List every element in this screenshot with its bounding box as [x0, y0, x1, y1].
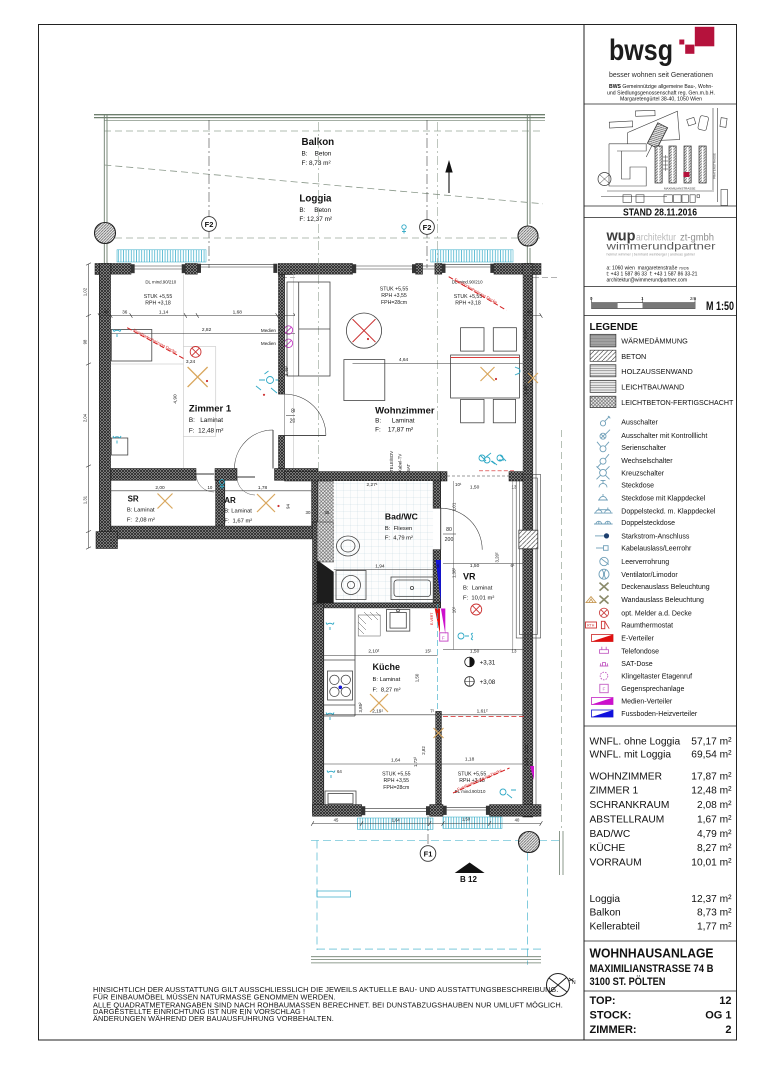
svg-text:10¹: 10¹	[455, 482, 462, 487]
svg-text:2,10²: 2,10²	[368, 649, 379, 655]
svg-text:1,77 m²: 1,77 m²	[697, 921, 732, 932]
svg-text:B: Laminat: B: Laminat	[463, 586, 493, 592]
svg-text:RPH +3,55: RPH +3,55	[381, 293, 407, 299]
svg-text:B 12: B 12	[460, 875, 477, 884]
svg-text:BETON: BETON	[621, 352, 646, 361]
svg-text:ÄNDERUNGEN WÄHREND DER BAUAUSF: ÄNDERUNGEN WÄHREND DER BAUAUSFÜHRUNG VOR…	[93, 1014, 334, 1023]
svg-text:7¹: 7¹	[430, 709, 434, 714]
svg-text:B: Laminat: B: Laminat	[224, 509, 252, 515]
svg-text:F: 2,08 m²: F: 2,08 m²	[127, 517, 155, 523]
svg-text:Bad/WC: Bad/WC	[385, 511, 418, 521]
svg-text:1,68: 1,68	[233, 309, 243, 315]
svg-text:2,27¹: 2,27¹	[367, 482, 378, 488]
svg-text:1,94: 1,94	[375, 563, 385, 569]
svg-text:Klingeltaster Etagenruf: Klingeltaster Etagenruf	[621, 674, 692, 681]
svg-text:besser wohnen seit Generatione: besser wohnen seit Generationen	[609, 70, 713, 79]
svg-text:17,87 m²: 17,87 m²	[691, 772, 732, 783]
svg-text:3,85²: 3,85²	[358, 702, 363, 713]
svg-text:40: 40	[526, 309, 532, 314]
svg-text:TELE/EDV: TELE/EDV	[389, 451, 394, 472]
svg-text:helmut wimmer | bernhard weinb: helmut wimmer | bernhard weinberger | an…	[607, 252, 695, 256]
svg-text:WOHNHAUSANLAGE: WOHNHAUSANLAGE	[590, 946, 714, 961]
svg-text:64: 64	[337, 769, 342, 774]
svg-text:STOCK:: STOCK:	[590, 1009, 632, 1021]
svg-text:B: Beton: B: Beton	[302, 151, 332, 158]
svg-text:M 1:50: M 1:50	[706, 301, 734, 313]
svg-text:F: 4,79 m²: F: 4,79 m²	[385, 536, 413, 542]
svg-text:2,82: 2,82	[202, 327, 212, 333]
svg-text:F2: F2	[205, 220, 214, 229]
svg-text:1,61²: 1,61²	[477, 709, 488, 715]
svg-text:Zimmer 1: Zimmer 1	[189, 404, 232, 415]
svg-text:Telefondose: Telefondose	[621, 649, 659, 656]
svg-text:F: 8,27 m²: F: 8,27 m²	[373, 687, 401, 693]
svg-text:wimmerundpartner: wimmerundpartner	[605, 242, 716, 253]
svg-text:VR: VR	[463, 572, 476, 582]
svg-text:MAXIMILIANSTRASSE 74 B: MAXIMILIANSTRASSE 74 B	[590, 963, 714, 975]
svg-text:+3,31: +3,31	[480, 660, 496, 667]
svg-text:12,37 m²: 12,37 m²	[691, 894, 732, 905]
svg-text:3,46²: 3,46²	[523, 328, 528, 339]
svg-text:1,50: 1,50	[470, 485, 480, 491]
svg-text:1,67 m²: 1,67 m²	[697, 814, 732, 825]
svg-text:Wechselschalter: Wechselschalter	[621, 458, 673, 465]
svg-text:STUK +5,55: STUK +5,55	[382, 771, 411, 777]
svg-text:Medien: Medien	[261, 328, 277, 333]
svg-text:35: 35	[324, 510, 329, 515]
svg-text:Ventilator/Limodor: Ventilator/Limodor	[621, 572, 678, 579]
svg-text:2,08 m²: 2,08 m²	[697, 800, 732, 811]
svg-text:1,78: 1,78	[258, 485, 268, 491]
svg-text:B: Laminat: B: Laminat	[373, 677, 401, 683]
svg-text:F: 17,87 m²: F: 17,87 m²	[375, 427, 413, 434]
svg-text:1,32: 1,32	[524, 744, 529, 753]
svg-text:Kreuzschalter: Kreuzschalter	[621, 470, 664, 477]
svg-text:1,50: 1,50	[462, 817, 471, 822]
svg-text:F: 12,37 m²: F: 12,37 m²	[299, 216, 332, 223]
svg-text:1,14: 1,14	[159, 309, 169, 315]
svg-text:Kabelauslass/Leerrohr: Kabelauslass/Leerrohr	[621, 546, 692, 553]
svg-text:Küche: Küche	[373, 662, 401, 672]
svg-text:69,54 m²: 69,54 m²	[691, 749, 732, 760]
svg-text:F: 12,48 m²: F: 12,48 m²	[189, 427, 223, 434]
svg-text:SR: SR	[128, 495, 139, 504]
svg-text:FPH=28cm: FPH=28cm	[381, 300, 407, 306]
svg-text:Doppelsteckd. m. Klappdeckel: Doppelsteckd. m. Klappdeckel	[621, 509, 716, 516]
svg-text:Leerverrohrung: Leerverrohrung	[621, 559, 669, 566]
svg-text:Medien-Verteiler: Medien-Verteiler	[621, 699, 673, 706]
svg-text:Gegensprechanlage: Gegensprechanlage	[621, 686, 684, 693]
svg-text:40: 40	[515, 818, 520, 823]
svg-text:bwsg: bwsg	[609, 34, 673, 67]
svg-text:1,50: 1,50	[414, 673, 419, 682]
svg-text:3,20²: 3,20²	[495, 552, 500, 563]
svg-text:SCHRANKRAUM: SCHRANKRAUM	[590, 800, 670, 811]
svg-text:STAND 28.11.2016: STAND 28.11.2016	[623, 207, 697, 218]
svg-text:architektur@wimmerundpartner.c: architektur@wimmerundpartner.com	[607, 278, 688, 284]
svg-text:10: 10	[434, 563, 439, 568]
svg-text:1,64: 1,64	[391, 758, 401, 764]
svg-text:Serienschalter: Serienschalter	[621, 445, 666, 452]
svg-text:E-VERT: E-VERT	[430, 613, 434, 625]
svg-text:LEICHTBAUWAND: LEICHTBAUWAND	[621, 382, 684, 391]
svg-text:10,01 m²: 10,01 m²	[691, 857, 732, 868]
svg-text:2,04: 2,04	[83, 413, 88, 422]
svg-text:F1: F1	[424, 849, 433, 858]
svg-text:10¹: 10¹	[452, 606, 457, 613]
svg-text:3,46²: 3,46²	[523, 384, 528, 395]
svg-text:N: N	[572, 980, 576, 986]
svg-text:10: 10	[207, 485, 212, 490]
svg-text:45: 45	[334, 818, 339, 823]
svg-text:DL mind.90/210: DL mind.90/210	[145, 279, 176, 284]
svg-text:2,82: 2,82	[421, 746, 426, 755]
svg-text:1,18: 1,18	[465, 757, 475, 763]
svg-text:LEGENDE: LEGENDE	[590, 322, 639, 333]
svg-text:PRATERSTRASSE: PRATERSTRASSE	[713, 153, 717, 179]
svg-text:BWS Gemeinnützige allgemeine B: BWS Gemeinnützige allgemeine Bau-, Wohn-	[609, 84, 713, 90]
svg-text:200: 200	[445, 537, 454, 543]
svg-text:TOP:: TOP:	[590, 995, 616, 1007]
svg-text:LEICHTBETON-FERTIGSCHACHT: LEICHTBETON-FERTIGSCHACHT	[621, 398, 734, 407]
svg-text:E-Verteiler: E-Verteiler	[621, 636, 654, 643]
svg-text:80: 80	[446, 527, 452, 533]
svg-text:Balkon: Balkon	[590, 907, 621, 918]
svg-text:Steckdose: Steckdose	[621, 483, 654, 490]
svg-text:ZIMMER:: ZIMMER:	[590, 1024, 637, 1036]
svg-text:1,01: 1,01	[452, 502, 457, 511]
svg-text:30: 30	[306, 510, 311, 515]
svg-text:57,17 m²: 57,17 m²	[691, 736, 732, 747]
svg-text:WNFL. mit Loggia: WNFL. mit Loggia	[590, 749, 672, 760]
svg-text:1,02: 1,02	[83, 287, 88, 296]
svg-text:13: 13	[512, 485, 517, 490]
svg-text:Doppelsteckdose: Doppelsteckdose	[621, 520, 675, 527]
svg-text:4,64: 4,64	[399, 357, 409, 363]
svg-text:15¹: 15¹	[425, 649, 432, 654]
svg-text:98: 98	[83, 339, 88, 344]
svg-text:B: Beton: B: Beton	[299, 207, 331, 214]
svg-text:KÜCHE: KÜCHE	[590, 842, 626, 854]
svg-text:F: 8,73 m²: F: 8,73 m²	[302, 160, 331, 167]
svg-text:Deckenauslass Beleuchtung: Deckenauslass Beleuchtung	[621, 584, 709, 591]
svg-text:4,79 m²: 4,79 m²	[697, 829, 732, 840]
svg-text:8,73 m²: 8,73 m²	[697, 907, 732, 918]
svg-text:Raumthermostat: Raumthermostat	[621, 623, 673, 630]
svg-text:2m: 2m	[690, 296, 696, 301]
svg-text:Balkon: Balkon	[302, 137, 335, 148]
svg-text:4,90: 4,90	[173, 394, 179, 404]
svg-text:STUK +5,55: STUK +5,55	[144, 294, 173, 300]
svg-text:B: Laminat: B: Laminat	[189, 417, 223, 424]
svg-text:OG 1: OG 1	[705, 1009, 731, 1021]
svg-text:1,43: 1,43	[524, 757, 529, 766]
svg-text:ZIMMER 1: ZIMMER 1	[590, 785, 639, 796]
svg-text:RPH +3,55: RPH +3,55	[384, 778, 410, 784]
svg-text:Wandauslass Beleuchtung: Wandauslass Beleuchtung	[621, 597, 704, 604]
svg-text:8,27 m²: 8,27 m²	[697, 843, 732, 854]
svg-text:STUK +5,55: STUK +5,55	[380, 286, 409, 292]
svg-text:Loggia: Loggia	[299, 194, 332, 205]
svg-text:SAT-Dose: SAT-Dose	[621, 661, 652, 668]
svg-text:Kabel-TV: Kabel-TV	[398, 454, 403, 472]
svg-text:HOLZAUSSENWAND: HOLZAUSSENWAND	[621, 367, 693, 376]
svg-text:F: F	[442, 635, 445, 640]
svg-text:B: Laminat: B: Laminat	[375, 417, 415, 424]
svg-text:ABSTELLRAUM: ABSTELLRAUM	[590, 814, 665, 825]
svg-text:Medien: Medien	[261, 341, 277, 346]
svg-text:Ausschalter: Ausschalter	[621, 419, 658, 426]
svg-text:RPH +3,18: RPH +3,18	[145, 301, 171, 307]
svg-text:WÄRMEDÄMMUNG: WÄRMEDÄMMUNG	[621, 337, 688, 346]
svg-text:Kellerabteil: Kellerabteil	[590, 921, 640, 932]
svg-text:1,38²: 1,38²	[452, 567, 457, 578]
svg-text:Margaretengürtel 38-40, 1050 W: Margaretengürtel 38-40, 1050 Wien	[620, 97, 702, 103]
svg-text:MAXIMILIANSTRASSE: MAXIMILIANSTRASSE	[664, 187, 695, 191]
svg-text:1,72²: 1,72²	[413, 756, 418, 767]
svg-text:1,31: 1,31	[83, 495, 88, 504]
svg-text:12: 12	[719, 995, 731, 1007]
svg-text:F: 1,67 m²: F: 1,67 m²	[224, 518, 252, 524]
svg-text:Steckdose mit Klappdeckel: Steckdose mit Klappdeckel	[621, 495, 705, 502]
svg-text:3100 ST. PÖLTEN: 3100 ST. PÖLTEN	[590, 975, 666, 988]
svg-text:RPH +3,18: RPH +3,18	[455, 301, 481, 307]
svg-text:FPH=28cm: FPH=28cm	[383, 785, 409, 791]
svg-text:40: 40	[103, 309, 109, 314]
svg-text:BAD/WC: BAD/WC	[590, 829, 631, 840]
svg-text:WNFL. ohne Loggia: WNFL. ohne Loggia	[590, 736, 681, 747]
svg-text:Starkstrom-Anschluss: Starkstrom-Anschluss	[621, 534, 690, 541]
svg-text:und Siedlungsgenossenschaft re: und Siedlungsgenossenschaft reg. Gen.m.b…	[607, 90, 715, 96]
svg-text:SAT: SAT	[406, 463, 411, 472]
svg-text:Fussboden-Heizverteiler: Fussboden-Heizverteiler	[621, 711, 698, 718]
svg-text:F: F	[603, 686, 606, 691]
svg-text:Loggia: Loggia	[590, 894, 621, 905]
svg-text:2: 2	[725, 1024, 731, 1036]
svg-text:94: 94	[286, 504, 291, 509]
svg-text:2,00: 2,00	[155, 485, 165, 491]
svg-text:B: Fliesen: B: Fliesen	[385, 526, 412, 532]
svg-text:Wohnzimmer: Wohnzimmer	[375, 406, 435, 417]
svg-text:+3,08: +3,08	[480, 679, 496, 686]
svg-text:3,24: 3,24	[186, 359, 196, 365]
svg-text:VORRAUM: VORRAUM	[590, 857, 642, 868]
svg-text:F: 10,01 m²: F: 10,01 m²	[463, 596, 494, 602]
svg-text:WOHNZIMMER: WOHNZIMMER	[590, 772, 662, 783]
svg-text:B: Laminat: B: Laminat	[127, 508, 155, 514]
svg-text:12,48 m²: 12,48 m²	[691, 785, 732, 796]
svg-text:F2: F2	[423, 223, 432, 232]
svg-text:36: 36	[122, 309, 128, 314]
svg-text:RTH: RTH	[587, 624, 595, 628]
svg-text:opt. Melder a.d. Decke: opt. Melder a.d. Decke	[621, 610, 692, 617]
svg-text:2,19¹: 2,19¹	[372, 709, 383, 715]
svg-text:1,64: 1,64	[392, 818, 401, 823]
svg-text:AR: AR	[224, 496, 236, 505]
svg-text:Ausschalter mit Kontrolllicht: Ausschalter mit Kontrolllicht	[621, 433, 707, 440]
